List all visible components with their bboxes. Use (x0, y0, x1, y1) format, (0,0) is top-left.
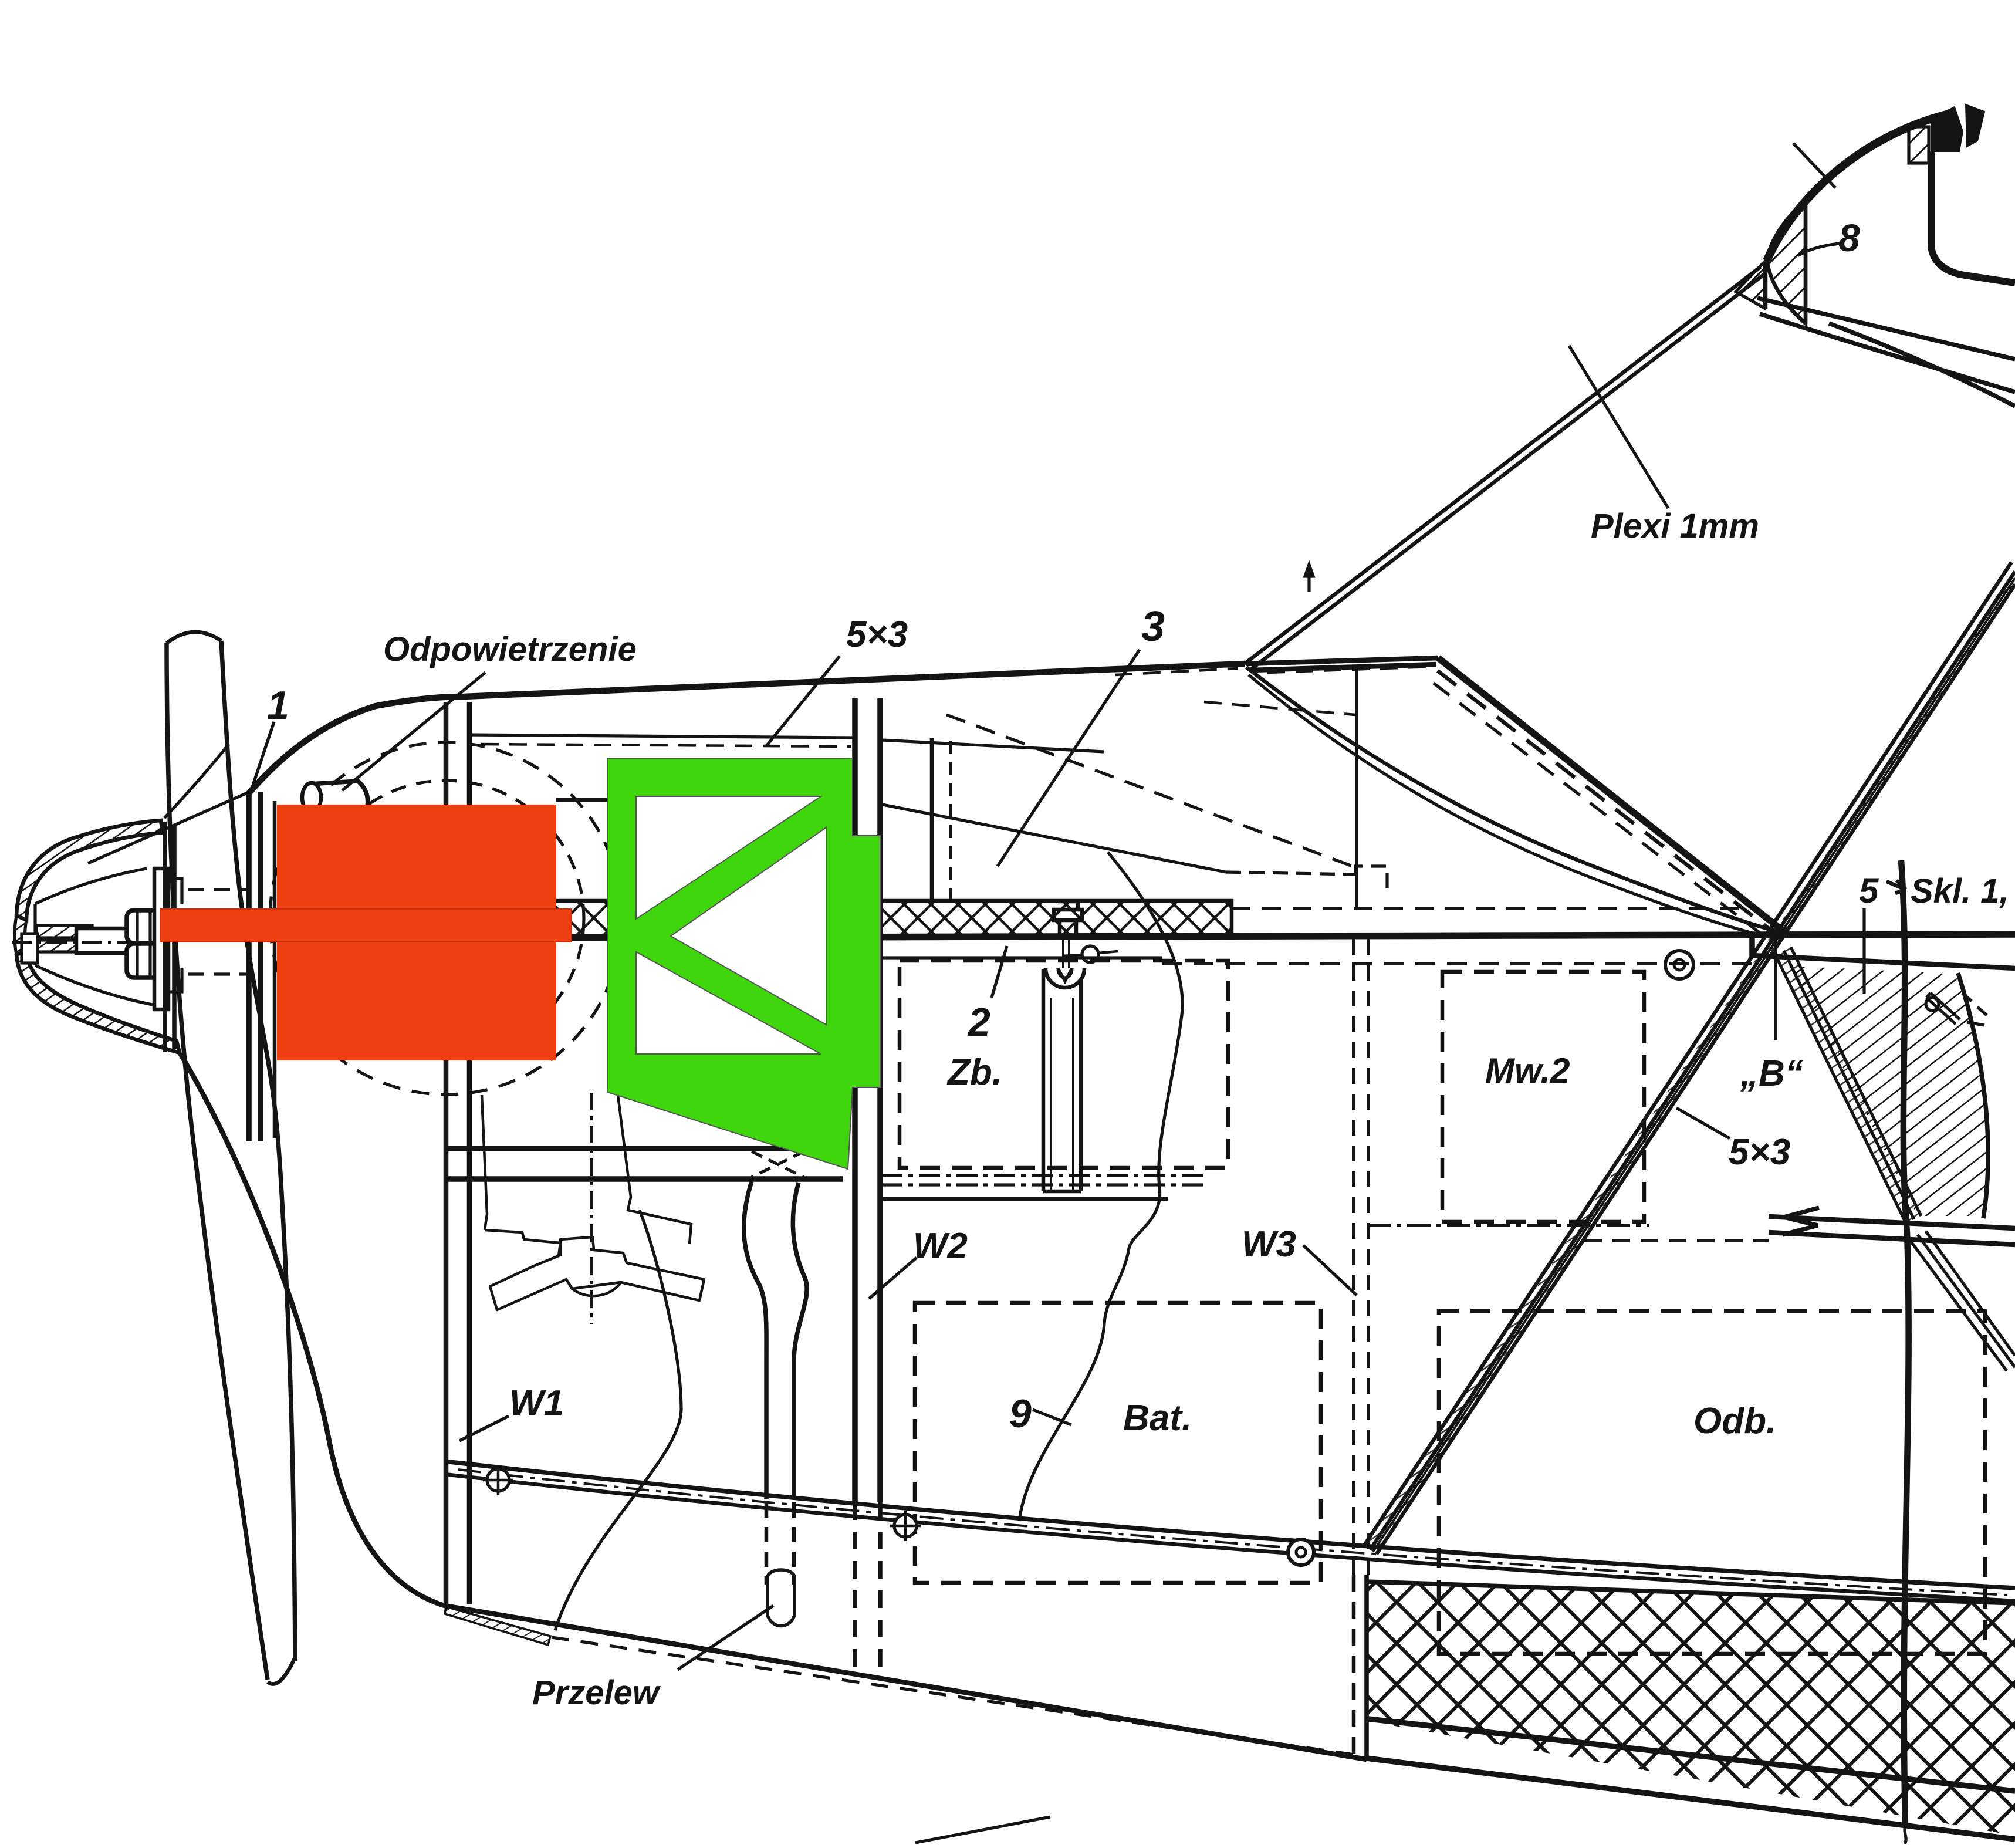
svg-text:Odpowietrzenie: Odpowietrzenie (383, 630, 637, 668)
svg-text:W3: W3 (1242, 1224, 1296, 1265)
svg-text:Skl. 1,: Skl. 1, (1911, 872, 2009, 910)
svg-text:Przelew: Przelew (532, 1674, 661, 1712)
svg-text:8: 8 (1838, 216, 1860, 259)
svg-text:5: 5 (1859, 871, 1879, 910)
svg-text:1: 1 (267, 683, 289, 728)
svg-text:3: 3 (1141, 603, 1165, 650)
svg-text:Bat.: Bat. (1123, 1398, 1192, 1438)
svg-text:Odb.: Odb. (1693, 1401, 1776, 1441)
svg-text:W2: W2 (913, 1226, 968, 1266)
svg-text:W1: W1 (509, 1383, 564, 1424)
svg-text:Zb.: Zb. (946, 1052, 1002, 1093)
svg-text:„B“: „B“ (1740, 1053, 1803, 1094)
svg-text:Plexi 1mm: Plexi 1mm (1591, 507, 1759, 545)
svg-text:5×3: 5×3 (1729, 1132, 1790, 1173)
svg-text:Mw.2: Mw.2 (1485, 1051, 1570, 1090)
svg-text:2: 2 (967, 1000, 990, 1045)
svg-text:5×3: 5×3 (846, 614, 908, 655)
svg-text:9: 9 (1009, 1391, 1032, 1436)
